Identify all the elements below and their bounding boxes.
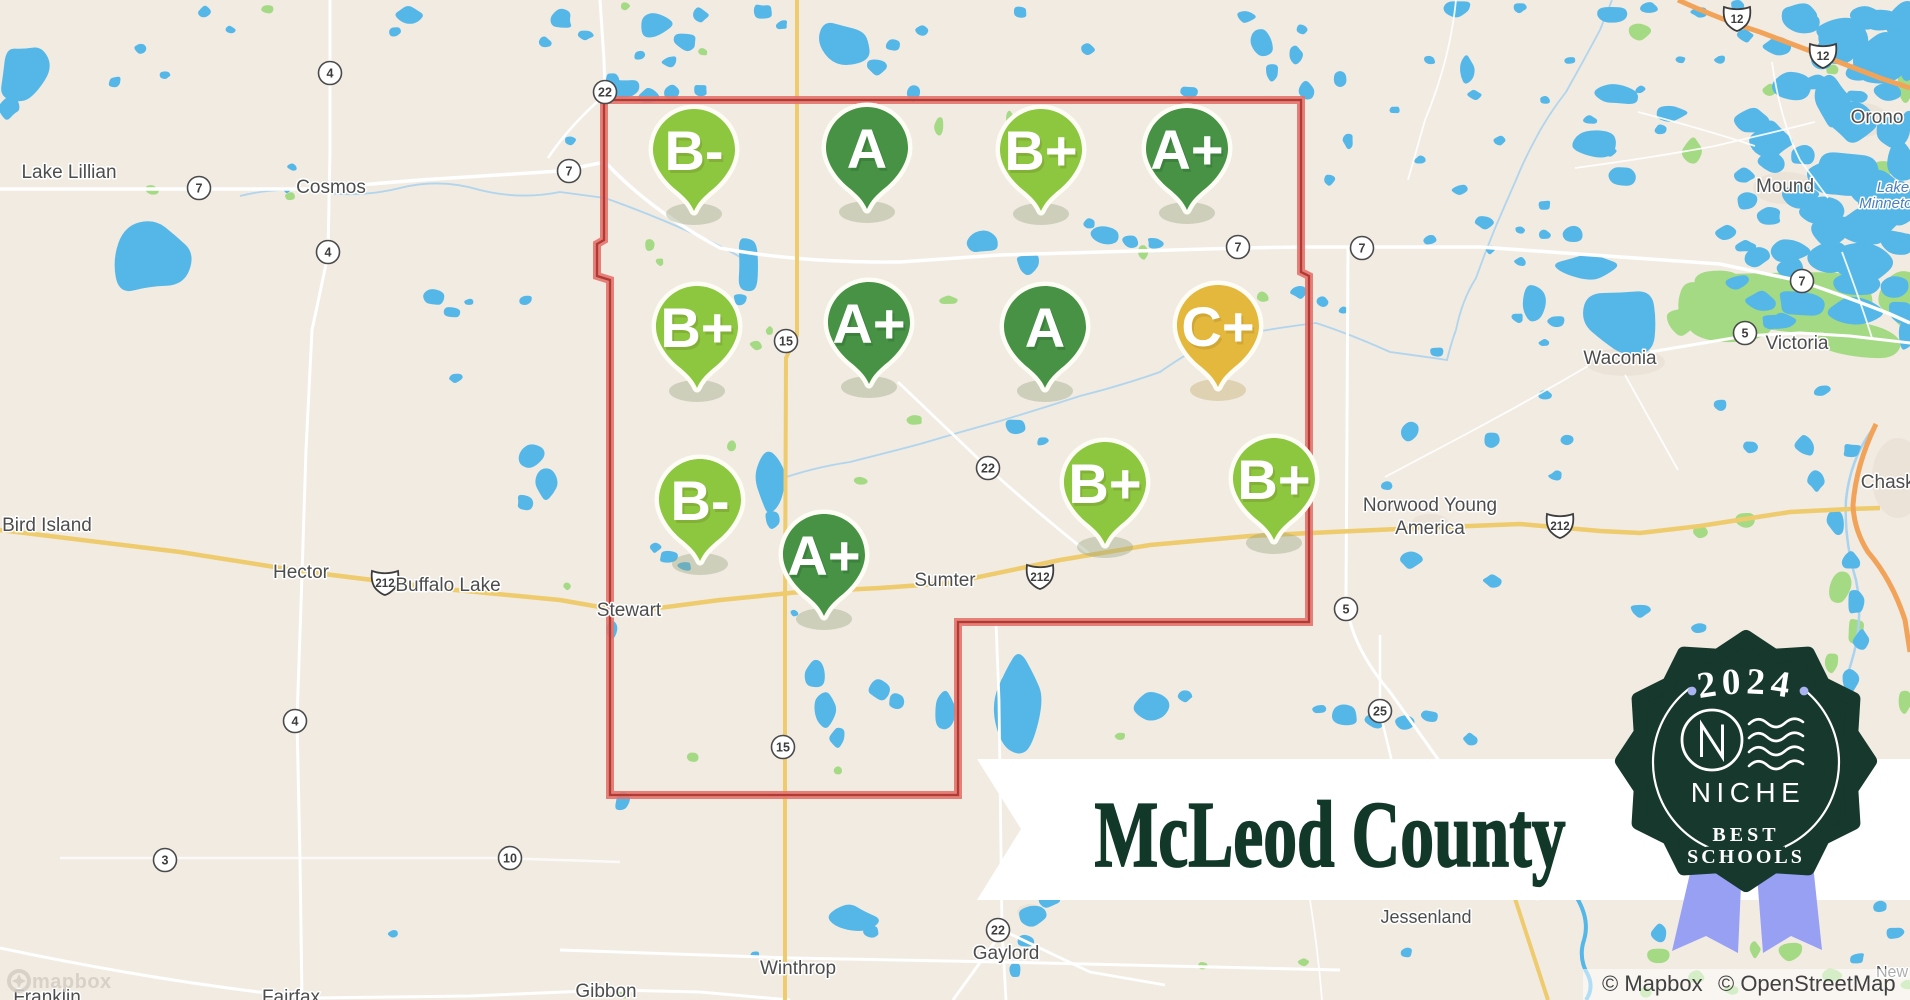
svg-text:22: 22 [991, 924, 1005, 938]
svg-text:McLeod County: McLeod County [1095, 783, 1566, 887]
svg-text:B+: B+ [1068, 452, 1141, 515]
svg-text:A+: A+ [787, 524, 860, 587]
svg-text:Lake Lillian: Lake Lillian [21, 162, 116, 183]
svg-text:Cosmos: Cosmos [296, 177, 366, 198]
svg-text:A: A [847, 117, 887, 180]
svg-text:4: 4 [327, 67, 334, 81]
svg-text:12: 12 [1817, 51, 1830, 63]
svg-text:A+: A+ [1150, 118, 1223, 181]
svg-text:mapbox: mapbox [32, 971, 112, 993]
svg-text:A+: A+ [832, 292, 905, 355]
svg-text:4: 4 [292, 715, 299, 729]
svg-text:10: 10 [503, 852, 517, 866]
svg-text:B-: B- [664, 119, 723, 182]
svg-text:B+: B+ [1004, 119, 1077, 182]
svg-text:Winthrop: Winthrop [760, 958, 836, 979]
svg-text:Fairfax: Fairfax [262, 987, 321, 1000]
svg-text:212: 212 [375, 578, 394, 590]
svg-text:Orono: Orono [1851, 107, 1904, 128]
svg-text:Gaylord: Gaylord [973, 943, 1040, 964]
svg-text:7: 7 [1235, 241, 1242, 255]
svg-text:15: 15 [776, 741, 790, 755]
svg-text:Buffalo Lake: Buffalo Lake [395, 575, 500, 596]
svg-text:212: 212 [1550, 521, 1569, 533]
svg-text:12: 12 [1731, 14, 1744, 26]
svg-text:7: 7 [566, 165, 573, 179]
svg-text:NICHE: NICHE [1691, 777, 1806, 808]
svg-text:Gibbon: Gibbon [575, 981, 636, 1000]
svg-text:© OpenStreetMap: © OpenStreetMap [1718, 971, 1896, 996]
svg-text:7: 7 [1799, 275, 1806, 289]
svg-text:Chaska: Chaska [1861, 472, 1910, 493]
svg-text:Sumter: Sumter [914, 570, 976, 591]
svg-text:5: 5 [1742, 327, 1749, 341]
svg-text:Victoria: Victoria [1765, 333, 1828, 354]
svg-text:15: 15 [779, 335, 793, 349]
svg-text:Waconia: Waconia [1583, 348, 1657, 369]
svg-text:B+: B+ [1237, 448, 1310, 511]
svg-text:Minneton: Minneton [1859, 195, 1910, 212]
svg-text:Lake: Lake [1877, 179, 1910, 196]
svg-text:B+: B+ [660, 296, 733, 359]
svg-text:212: 212 [1030, 572, 1049, 584]
svg-text:4: 4 [325, 246, 332, 260]
svg-text:BEST: BEST [1712, 824, 1779, 846]
svg-text:3: 3 [162, 854, 169, 868]
svg-text:Jessenland: Jessenland [1380, 907, 1471, 927]
svg-text:Norwood Young: Norwood Young [1363, 495, 1497, 516]
svg-text:22: 22 [981, 462, 995, 476]
svg-text:Hector: Hector [273, 562, 330, 583]
svg-text:© Mapbox: © Mapbox [1602, 971, 1703, 996]
svg-text:C+: C+ [1181, 295, 1254, 358]
svg-text:7: 7 [1359, 242, 1366, 256]
svg-text:Stewart: Stewart [597, 600, 662, 621]
svg-text:7: 7 [196, 182, 203, 196]
svg-text:B-: B- [670, 469, 729, 532]
svg-text:25: 25 [1373, 705, 1387, 719]
svg-text:America: America [1395, 518, 1465, 539]
svg-text:Bird Island: Bird Island [2, 515, 92, 536]
svg-text:22: 22 [598, 86, 612, 100]
svg-text:5: 5 [1343, 603, 1350, 617]
svg-text:A: A [1025, 296, 1065, 359]
svg-text:SCHOOLS: SCHOOLS [1687, 846, 1805, 868]
svg-text:Mound: Mound [1756, 176, 1814, 197]
